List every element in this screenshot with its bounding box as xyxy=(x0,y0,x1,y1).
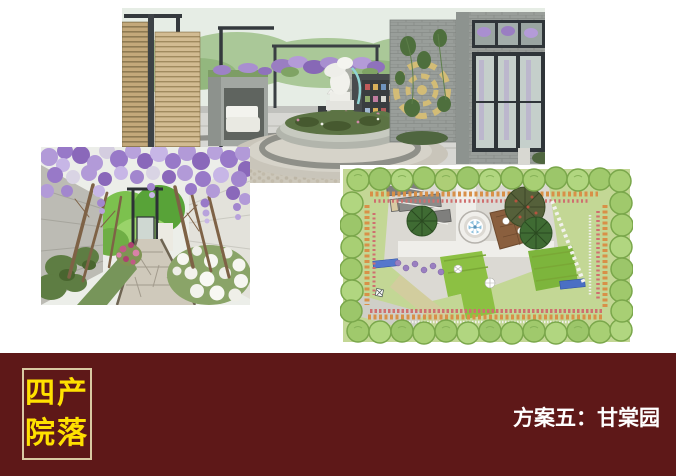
master-plan-graphic xyxy=(340,165,633,346)
wisteria-alley-render-image xyxy=(41,147,250,305)
wisteria-alley-graphic xyxy=(41,147,250,305)
presentation-slide: 四产 院落 方案五：甘棠园 xyxy=(0,0,676,476)
series-label-line1: 四产 xyxy=(25,374,89,414)
series-label-box: 四产 院落 xyxy=(22,368,92,460)
series-label-line2: 院落 xyxy=(25,414,89,454)
footer-banner: 四产 院落 方案五：甘棠园 xyxy=(0,353,676,476)
master-plan-image xyxy=(340,165,633,346)
slide-title: 方案五：甘棠园 xyxy=(513,402,660,432)
